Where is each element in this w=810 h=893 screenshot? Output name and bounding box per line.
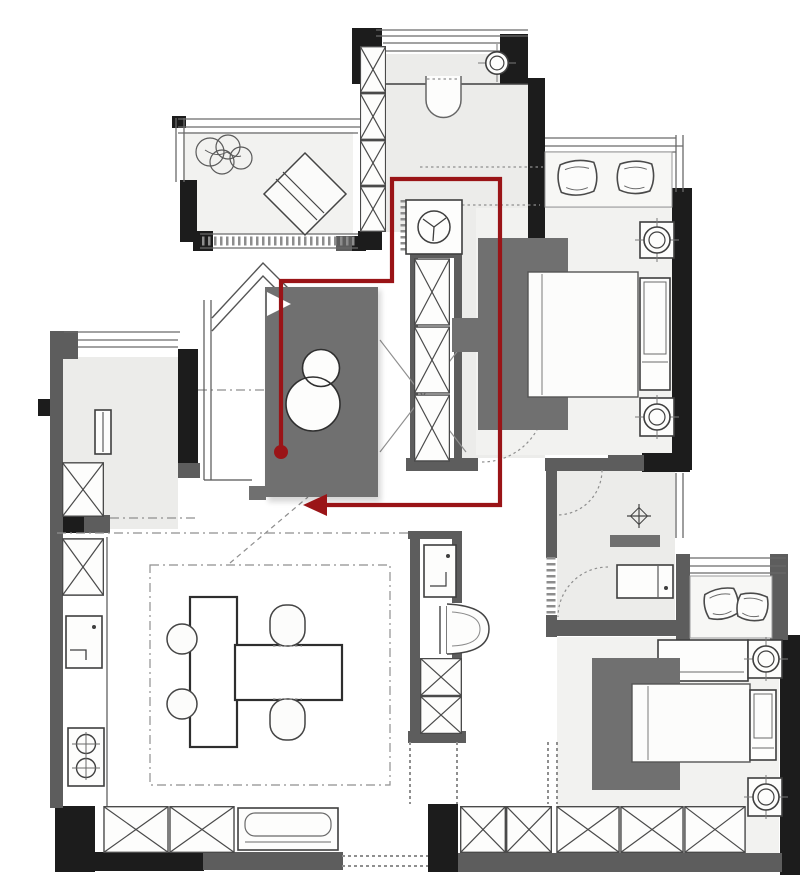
dresser: [452, 318, 482, 352]
wall-segment: [676, 554, 690, 640]
wall-segment: [454, 255, 462, 465]
xbox-icon: [621, 807, 683, 853]
chair: [270, 699, 305, 740]
bed-mattress: [528, 272, 638, 397]
wall-segment: [203, 852, 343, 870]
wall-segment: [770, 554, 788, 640]
wall-segment: [336, 236, 352, 251]
xbox-icon: [415, 259, 450, 325]
washing-machine-icon: [406, 200, 462, 254]
xbox-icon: [170, 807, 234, 853]
xbox-icon: [63, 463, 104, 516]
wall-segment: [608, 455, 644, 471]
island-table: [190, 597, 237, 747]
entry-basin-icon: [426, 76, 461, 118]
shelf: [610, 535, 660, 547]
xbox-icon: [360, 187, 385, 232]
xbox-icon: [421, 697, 462, 734]
floor-plan: [0, 0, 810, 893]
xbox-icon: [360, 141, 385, 186]
bench: [750, 690, 776, 760]
tv-bench: [238, 808, 338, 850]
xbox-icon: [360, 47, 385, 93]
wardrobe-row: [461, 807, 745, 853]
xbox-icon: [360, 94, 385, 140]
wall-segment: [408, 531, 462, 539]
xbox-icon: [415, 395, 450, 461]
hall-wardrobe: [415, 259, 450, 461]
wall-segment: [672, 188, 692, 470]
pillow-icon: [735, 591, 770, 623]
xbox-icon: [685, 807, 745, 853]
wall-segment: [780, 635, 800, 875]
bathroom-1: [421, 545, 489, 733]
bathroom-sink-icon: [424, 545, 456, 597]
route-start-dot: [274, 445, 288, 459]
floor-plan-canvas: [0, 0, 810, 893]
kitchen-sink-icon: [66, 616, 102, 668]
left-corridor-kitchen: [63, 463, 107, 806]
wall-segment: [546, 468, 557, 558]
entry-cabinet: [360, 47, 385, 232]
xbox-icon: [461, 807, 506, 853]
dining-table: [235, 645, 342, 700]
wall-segment: [428, 804, 458, 872]
study-room: [204, 263, 381, 502]
xbox-icon: [415, 327, 450, 393]
stool: [167, 624, 197, 654]
wall-segment: [50, 533, 63, 808]
stool: [167, 689, 197, 719]
wall-segment: [178, 463, 200, 478]
wall-segment: [50, 357, 63, 535]
chair: [270, 605, 305, 646]
wall-segment: [178, 349, 198, 465]
wall-segment: [458, 853, 782, 872]
xbox-icon: [557, 807, 619, 853]
living-dining: [104, 597, 342, 852]
xbox-icon: [507, 807, 552, 853]
desk-lip: [249, 486, 266, 500]
wall-segment: [553, 620, 695, 636]
pillow-icon: [616, 160, 654, 195]
wall-segment: [642, 453, 690, 472]
wall-segment: [528, 78, 545, 245]
bed-mattress: [632, 684, 750, 762]
toilet-icon: [440, 604, 489, 654]
pillow-icon: [558, 160, 597, 195]
bathroom-2-window: [676, 473, 683, 538]
wall-segment: [84, 515, 110, 533]
xbox-icon: [104, 807, 168, 853]
xbox-icon: [421, 659, 462, 696]
stove-icon: [68, 728, 104, 786]
diagonal-dash: [230, 497, 308, 563]
vanity: [617, 565, 673, 598]
wall-segment: [62, 515, 84, 533]
wall-segment: [50, 331, 78, 359]
xbox-icon: [63, 539, 104, 595]
wall-segment: [58, 852, 204, 871]
wall-segment: [410, 531, 420, 742]
